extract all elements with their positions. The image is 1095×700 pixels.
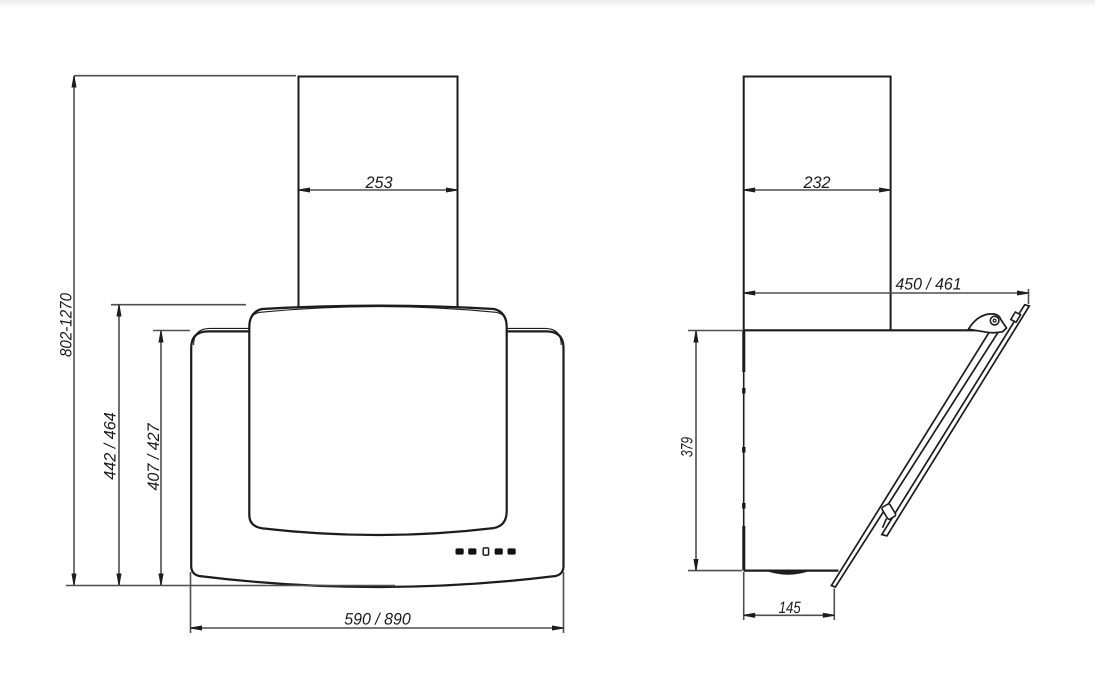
svg-text:442 / 464: 442 / 464 — [101, 412, 120, 480]
svg-text:145: 145 — [779, 598, 802, 617]
svg-text:379: 379 — [678, 437, 697, 457]
svg-text:232: 232 — [803, 173, 831, 192]
svg-text:450 / 461: 450 / 461 — [895, 274, 961, 293]
svg-text:590 / 890: 590 / 890 — [344, 609, 411, 628]
svg-text:802-1270: 802-1270 — [57, 292, 76, 357]
svg-text:407 / 427: 407 / 427 — [144, 423, 163, 491]
svg-text:253: 253 — [365, 173, 394, 192]
